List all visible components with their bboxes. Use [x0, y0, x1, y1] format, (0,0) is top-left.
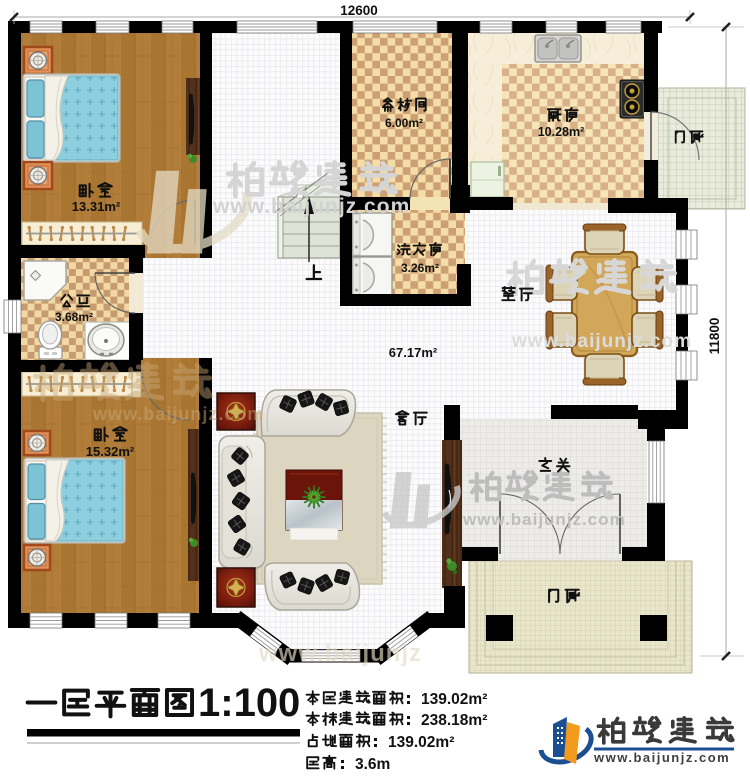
svg-text:12600: 12600: [340, 3, 378, 18]
svg-text:www.baijunjz.com: www.baijunjz.com: [511, 331, 692, 352]
svg-text:www.baijunjz.com: www.baijunjz.com: [212, 195, 410, 218]
svg-text:www.baijunjz: www.baijunjz: [258, 640, 422, 667]
svg-text:13.31m²: 13.31m²: [72, 199, 121, 214]
svg-text:67.17m²: 67.17m²: [389, 345, 438, 360]
svg-text:3.68m²: 3.68m²: [55, 310, 93, 324]
svg-text:139.02m²: 139.02m²: [421, 691, 487, 708]
svg-text:238.18m²: 238.18m²: [421, 712, 487, 729]
svg-text:6.00m²: 6.00m²: [385, 116, 423, 130]
svg-text:www.baijunjz.com: www.baijunjz.com: [462, 510, 626, 529]
svg-text:10.28m²: 10.28m²: [538, 125, 585, 139]
svg-text:139.02m²: 139.02m²: [388, 734, 454, 751]
svg-text:www.baijunjz.com: www.baijunjz.com: [593, 750, 730, 765]
svg-text:11800: 11800: [707, 318, 722, 355]
svg-text:15.32m²: 15.32m²: [86, 444, 135, 459]
svg-text:www.baijunjz.com: www.baijunjz.com: [92, 404, 264, 424]
svg-text:3.6m: 3.6m: [355, 756, 390, 773]
svg-text:3.26m²: 3.26m²: [401, 261, 439, 275]
svg-text:1:100: 1:100: [198, 681, 300, 725]
